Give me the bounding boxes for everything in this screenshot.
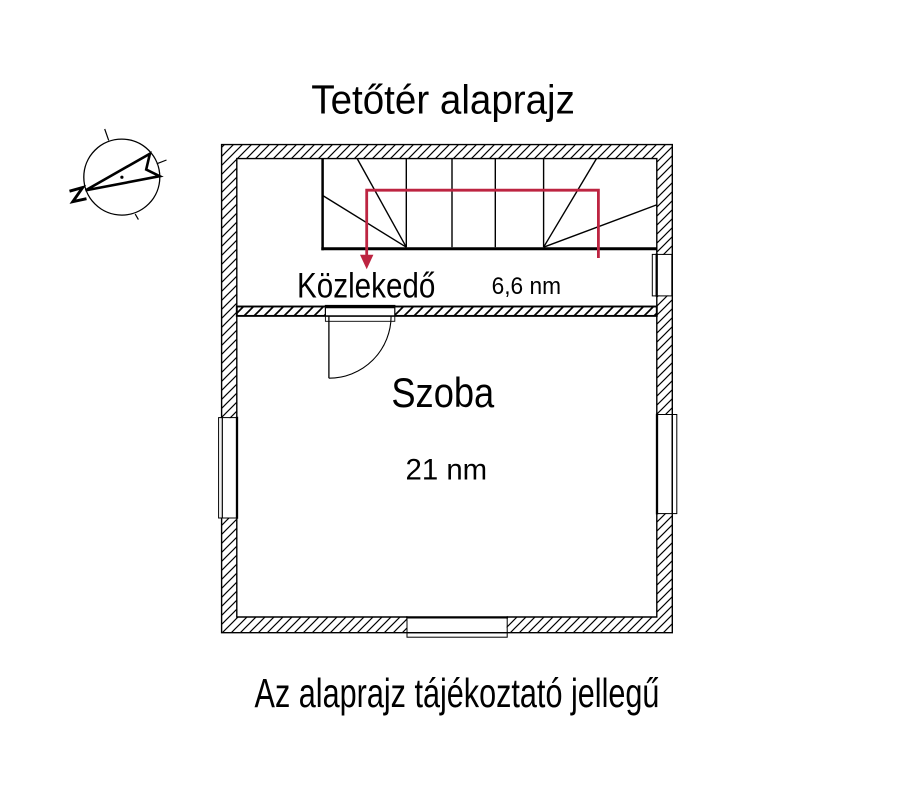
svg-text:Közlekedő: Közlekedő [297,267,435,306]
svg-text:6,6 nm: 6,6 nm [492,273,561,300]
svg-text:Az alaprajz tájékoztató jelleg: Az alaprajz tájékoztató jellegű [255,670,660,716]
svg-text:21 nm: 21 nm [406,454,488,487]
svg-text:Tetőtér alaprajz: Tetőtér alaprajz [311,76,575,122]
svg-text:Szoba: Szoba [391,370,495,416]
